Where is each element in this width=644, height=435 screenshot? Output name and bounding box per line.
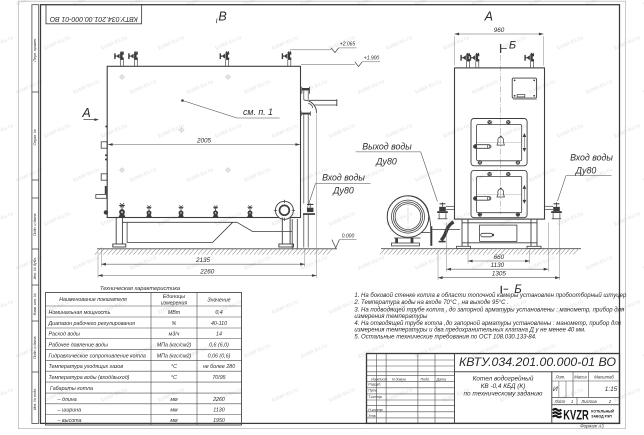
svg-text:измерения: измерения (161, 300, 188, 306)
svg-text:Лист: Лист (554, 399, 566, 404)
svg-text:мм: мм (170, 397, 178, 403)
svg-text:0,4: 0,4 (215, 310, 222, 316)
svg-text:°С: °С (171, 364, 177, 370)
svg-text:960: 960 (494, 27, 505, 34)
svg-text:– длина: – длина (57, 397, 77, 403)
svg-text:Пров.: Пров. (368, 389, 377, 393)
svg-text:Гидравлическое сопротивление к: Гидравлическое сопротивление котла (49, 353, 146, 359)
svg-text:70/95: 70/95 (212, 375, 225, 381)
svg-text:Рабочее давление воды: Рабочее давление воды (49, 342, 108, 348)
svg-text:МПа (кгс/см2): МПа (кгс/см2) (157, 342, 192, 348)
svg-text:Масса: Масса (574, 375, 587, 380)
svg-text:по техническому заданию: по техническому заданию (464, 389, 543, 397)
svg-text:+1.900: +1.900 (364, 56, 380, 62)
svg-text:Подп.: Подп. (421, 378, 431, 382)
svg-text:%: % (172, 321, 177, 327)
svg-text:2005: 2005 (196, 137, 212, 144)
svg-text:4. На отводящей трубе котла ,: 4. На отводящей трубе котла ,до запорной… (354, 320, 621, 327)
svg-text:– высота: – высота (57, 418, 82, 424)
svg-text:Лист: Лист (377, 378, 387, 382)
svg-text:измерения температуры и два пр: измерения температуры и два предохраните… (354, 327, 585, 333)
svg-text:Единицы: Единицы (163, 294, 185, 300)
svg-text:мм: мм (170, 408, 178, 414)
svg-text:Б: Б (509, 40, 516, 52)
svg-text:1950: 1950 (213, 418, 225, 424)
svg-text:Инв. № дубл.: Инв. № дубл. (33, 257, 37, 279)
svg-text:Т.контр.: Т.контр. (368, 395, 383, 399)
svg-text:Лит.: Лит. (555, 375, 566, 380)
svg-text:0,6 (6,0): 0,6 (6,0) (209, 342, 229, 348)
svg-text:см. п. 1: см. п. 1 (243, 107, 273, 117)
svg-text:А: А (484, 10, 493, 24)
svg-text:А: А (81, 106, 90, 120)
svg-text:°С: °С (171, 375, 177, 381)
svg-text:KVZR: KVZR (563, 407, 589, 422)
svg-text:Перв. примен.: Перв. примен. (33, 38, 37, 62)
svg-text:Утв.: Утв. (368, 414, 376, 418)
svg-text:Температура уходящих газов: Температура уходящих газов (49, 364, 124, 370)
svg-text:КВТУ.034.201.00.000-01 ВО: КВТУ.034.201.00.000-01 ВО (50, 15, 138, 24)
svg-text:Взам. инв. №: Взам. инв. № (33, 293, 37, 315)
svg-text:14: 14 (216, 332, 222, 338)
svg-text:МВт: МВт (168, 310, 181, 316)
svg-text:Диапазон рабочего регулировани: Диапазон рабочего регулирования (48, 321, 136, 327)
svg-text:Н.контр.: Н.контр. (368, 408, 383, 412)
svg-text:Дата: Дата (436, 378, 446, 382)
svg-text:660: 660 (494, 254, 505, 261)
svg-text:40-110: 40-110 (211, 321, 227, 327)
svg-text:не более 280: не более 280 (203, 364, 235, 370)
svg-text:Разраб.: Разраб. (368, 383, 381, 387)
svg-text:Ду80: Ду80 (575, 166, 597, 176)
svg-text:Значение: Значение (207, 298, 230, 304)
svg-text:5. Остальные технические треб: 5. Остальные технические требования по О… (354, 334, 536, 340)
svg-text:Техническая характеристика: Техническая характеристика (100, 286, 181, 292)
svg-text:В: В (218, 10, 226, 24)
svg-text:– ширина: – ширина (57, 408, 82, 414)
svg-text:N докум.: N докум. (392, 378, 407, 382)
svg-text:Масштаб: Масштаб (594, 375, 614, 380)
svg-text:1: 1 (571, 399, 573, 404)
svg-text:1130: 1130 (491, 262, 505, 269)
svg-text:Справ. №: Справ. № (33, 129, 37, 145)
svg-text:измерения температуры: измерения температуры (354, 314, 428, 320)
svg-text:2135: 2135 (195, 257, 211, 264)
svg-text:Вход воды: Вход воды (570, 153, 613, 163)
svg-text:Подп. и дата: Подп. и дата (33, 214, 37, 237)
svg-text:0.000: 0.000 (342, 234, 355, 240)
svg-text:Температура воды (вход/выход): Температура воды (вход/выход) (49, 375, 130, 381)
svg-text:2. Температура воды на входе: 2. Температура воды на входе 70°С , на в… (353, 300, 508, 306)
svg-text:И: И (553, 386, 558, 393)
svg-text:Наименование показателя: Наименование показателя (59, 297, 127, 303)
svg-text:0,06 (0,6): 0,06 (0,6) (208, 353, 231, 359)
svg-text:Формат А3: Формат А3 (580, 424, 604, 429)
svg-text:Расход воды: Расход воды (49, 332, 80, 338)
svg-text:Выход воды: Выход воды (362, 142, 412, 152)
svg-text:КВ -0,4 КБД (К): КВ -0,4 КБД (К) (481, 383, 526, 390)
svg-text:Подп. и дата: Подп. и дата (33, 337, 37, 360)
svg-text:1305: 1305 (492, 271, 507, 278)
svg-text:1130: 1130 (213, 408, 224, 414)
svg-text:2260: 2260 (199, 268, 215, 275)
svg-text:Инв. № подл.: Инв. № подл. (33, 388, 37, 410)
svg-text:мм: мм (170, 418, 178, 424)
svg-text:Ду80: Ду80 (375, 156, 397, 166)
svg-text:Котел водогрейный: Котел водогрейный (473, 374, 534, 382)
svg-text:Ду80: Ду80 (332, 186, 354, 196)
svg-text:3. На подводящей трубе котла: 3. На подводящей трубе котла , до запорн… (354, 306, 625, 313)
svg-text:Вход воды: Вход воды (322, 173, 365, 183)
svg-text:ЗАВОД РЭП: ЗАВОД РЭП (591, 414, 612, 418)
svg-text:КВТУ.034.201.00.000-01 ВО: КВТУ.034.201.00.000-01 ВО (459, 355, 616, 369)
svg-text:2260: 2260 (212, 397, 225, 403)
svg-text:Габариты котла: Габариты котла (50, 386, 93, 392)
svg-text:1:15: 1:15 (605, 386, 618, 393)
svg-text:Листов: Листов (580, 399, 597, 404)
svg-text:Номинальная мощность: Номинальная мощность (49, 310, 111, 316)
svg-text:+2.065: +2.065 (340, 42, 356, 48)
svg-text:МПа (кгс/см2): МПа (кгс/см2) (157, 353, 192, 359)
svg-text:КОТЕЛЬНЫЙ: КОТЕЛЬНЫЙ (591, 409, 614, 413)
svg-text:м3/ч: м3/ч (169, 332, 180, 338)
svg-text:1. На боковой стенке котла в: 1. На боковой стенке котла в области топ… (354, 292, 627, 299)
